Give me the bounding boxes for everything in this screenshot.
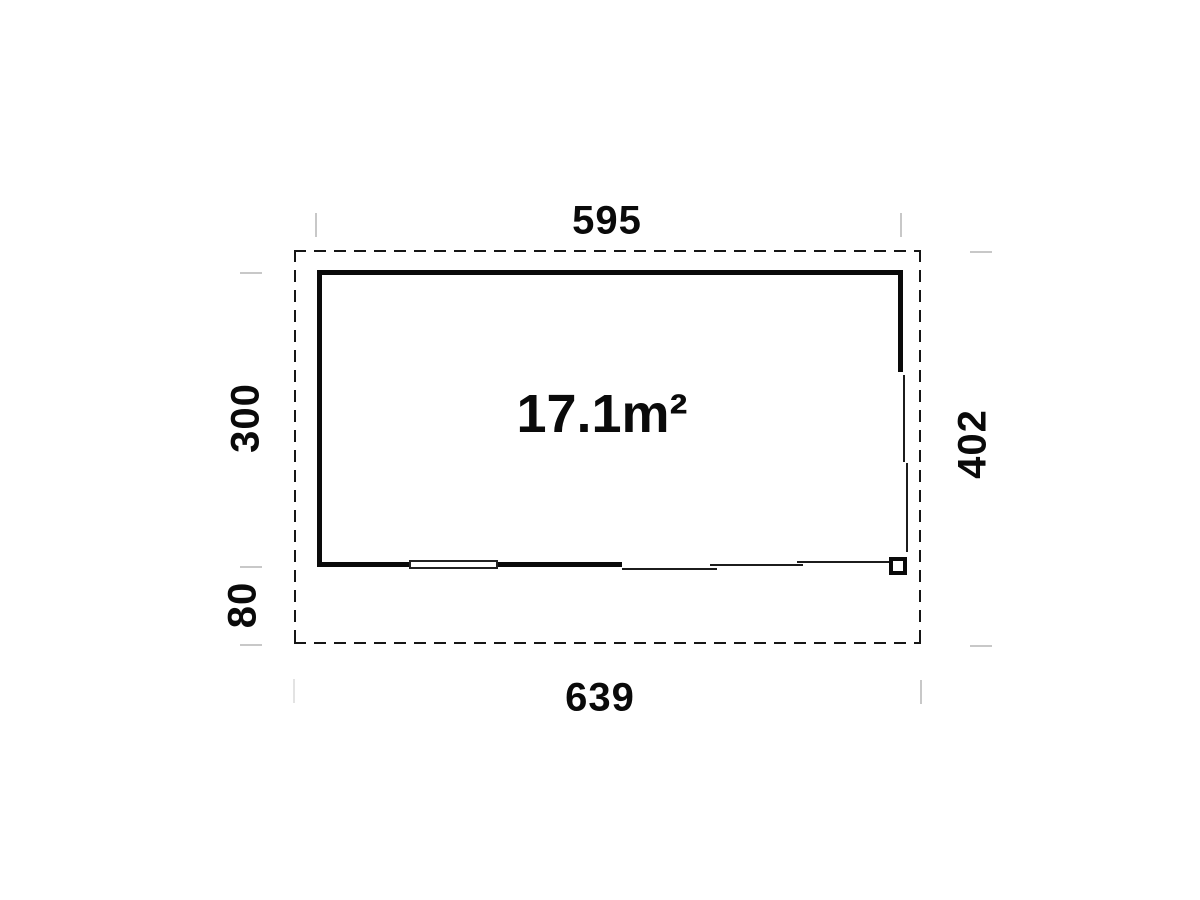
tick-left-lower [240,644,262,646]
window-bottom-wall [409,560,498,569]
tick-bottom-left [293,679,295,703]
tick-left-middle [240,566,262,568]
tick-top-left [315,213,317,237]
sliding-door-bottom-panel-3 [797,561,889,563]
sliding-door-bottom-panel-1 [622,568,717,570]
roof-outline-bottom [294,642,921,644]
wall-top [317,270,903,275]
dimension-left-room-depth: 300 [224,383,269,453]
tick-top-right [900,213,902,237]
sliding-door-right-panel-2 [906,463,908,552]
roof-outline-right [919,250,921,644]
wall-right-top [898,270,903,372]
dimension-left-overhang: 80 [221,582,266,629]
wall-left [317,270,322,567]
dimension-bottom-overall-width: 639 [565,676,635,721]
tick-right-lower [970,645,992,647]
sliding-door-bottom-panel-2 [710,564,803,566]
tick-bottom-right [920,680,922,704]
tick-left-upper [240,272,262,274]
corner-post [889,557,907,575]
sliding-door-right-panel-1 [903,375,905,462]
tick-right-upper [970,251,992,253]
floor-plan-canvas: 595 300 80 402 639 17.1m² [0,0,1200,900]
room-area-label: 17.1m² [516,383,687,445]
dimension-right-overall-depth: 402 [951,409,996,479]
dimension-top-width: 595 [572,199,642,244]
roof-outline-top [294,250,921,252]
roof-outline-left [294,250,296,644]
